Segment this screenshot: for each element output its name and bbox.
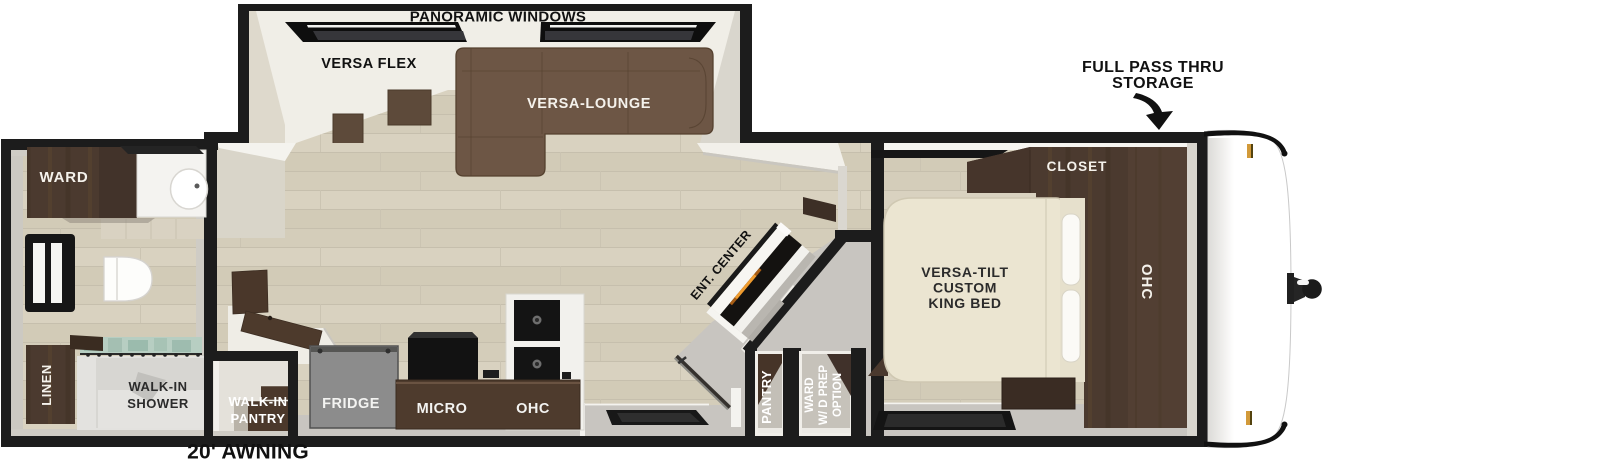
svg-text:KING BED: KING BED [928,295,1001,311]
svg-text:LINEN: LINEN [39,364,54,406]
svg-text:SHOWER: SHOWER [127,396,189,411]
svg-text:STORAGE: STORAGE [1112,75,1194,92]
svg-text:OHC: OHC [516,401,550,417]
svg-text:FULL PASS THRU: FULL PASS THRU [1082,59,1224,76]
svg-text:VERSA-LOUNGE: VERSA-LOUNGE [527,96,651,112]
svg-text:OHC: OHC [1138,264,1155,300]
svg-text:PANTRY: PANTRY [759,370,774,424]
svg-text:MICRO: MICRO [417,401,468,417]
svg-text:CUSTOM: CUSTOM [933,280,997,296]
svg-text:FRIDGE: FRIDGE [322,396,380,412]
svg-text:VERSA FLEX: VERSA FLEX [321,56,417,72]
svg-text:PANTRY: PANTRY [231,411,286,426]
svg-text:WARD: WARD [39,169,88,186]
svg-text:WALK-IN: WALK-IN [128,379,187,394]
svg-text:WALK-IN: WALK-IN [228,394,287,409]
svg-text:W/ D PREP: W/ D PREP [818,365,830,425]
svg-text:OPTION: OPTION [832,373,844,417]
svg-text:20' AWNING: 20' AWNING [187,441,309,460]
svg-text:VERSA-TILT: VERSA-TILT [921,264,1008,280]
svg-text:CLOSET: CLOSET [1047,159,1108,174]
svg-text:WARD: WARD [804,377,816,412]
svg-text:PANORAMIC WINDOWS: PANORAMIC WINDOWS [410,9,586,26]
